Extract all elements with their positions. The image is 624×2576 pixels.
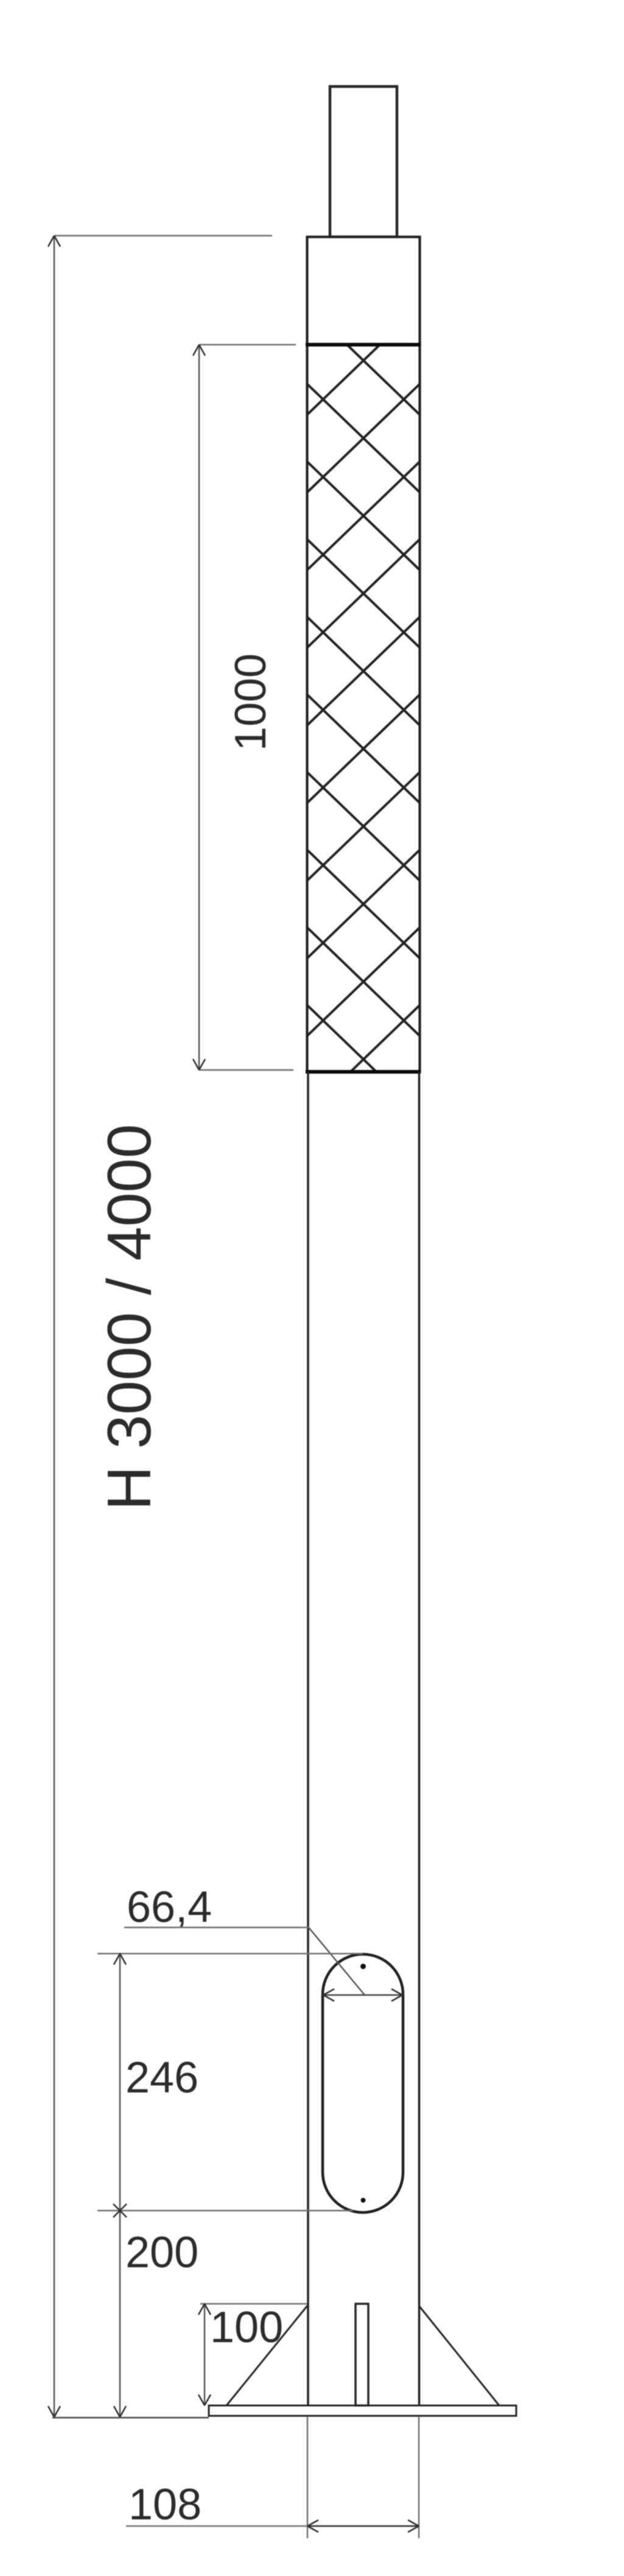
svg-text:1000: 1000 (226, 653, 275, 751)
svg-text:100: 100 (210, 2303, 283, 2352)
svg-text:H 3000 / 4000: H 3000 / 4000 (96, 1124, 164, 1511)
svg-text:200: 200 (125, 2228, 198, 2277)
svg-text:108: 108 (128, 2480, 202, 2529)
svg-text:246: 246 (125, 2053, 198, 2102)
svg-text:66,4: 66,4 (127, 1883, 212, 1932)
